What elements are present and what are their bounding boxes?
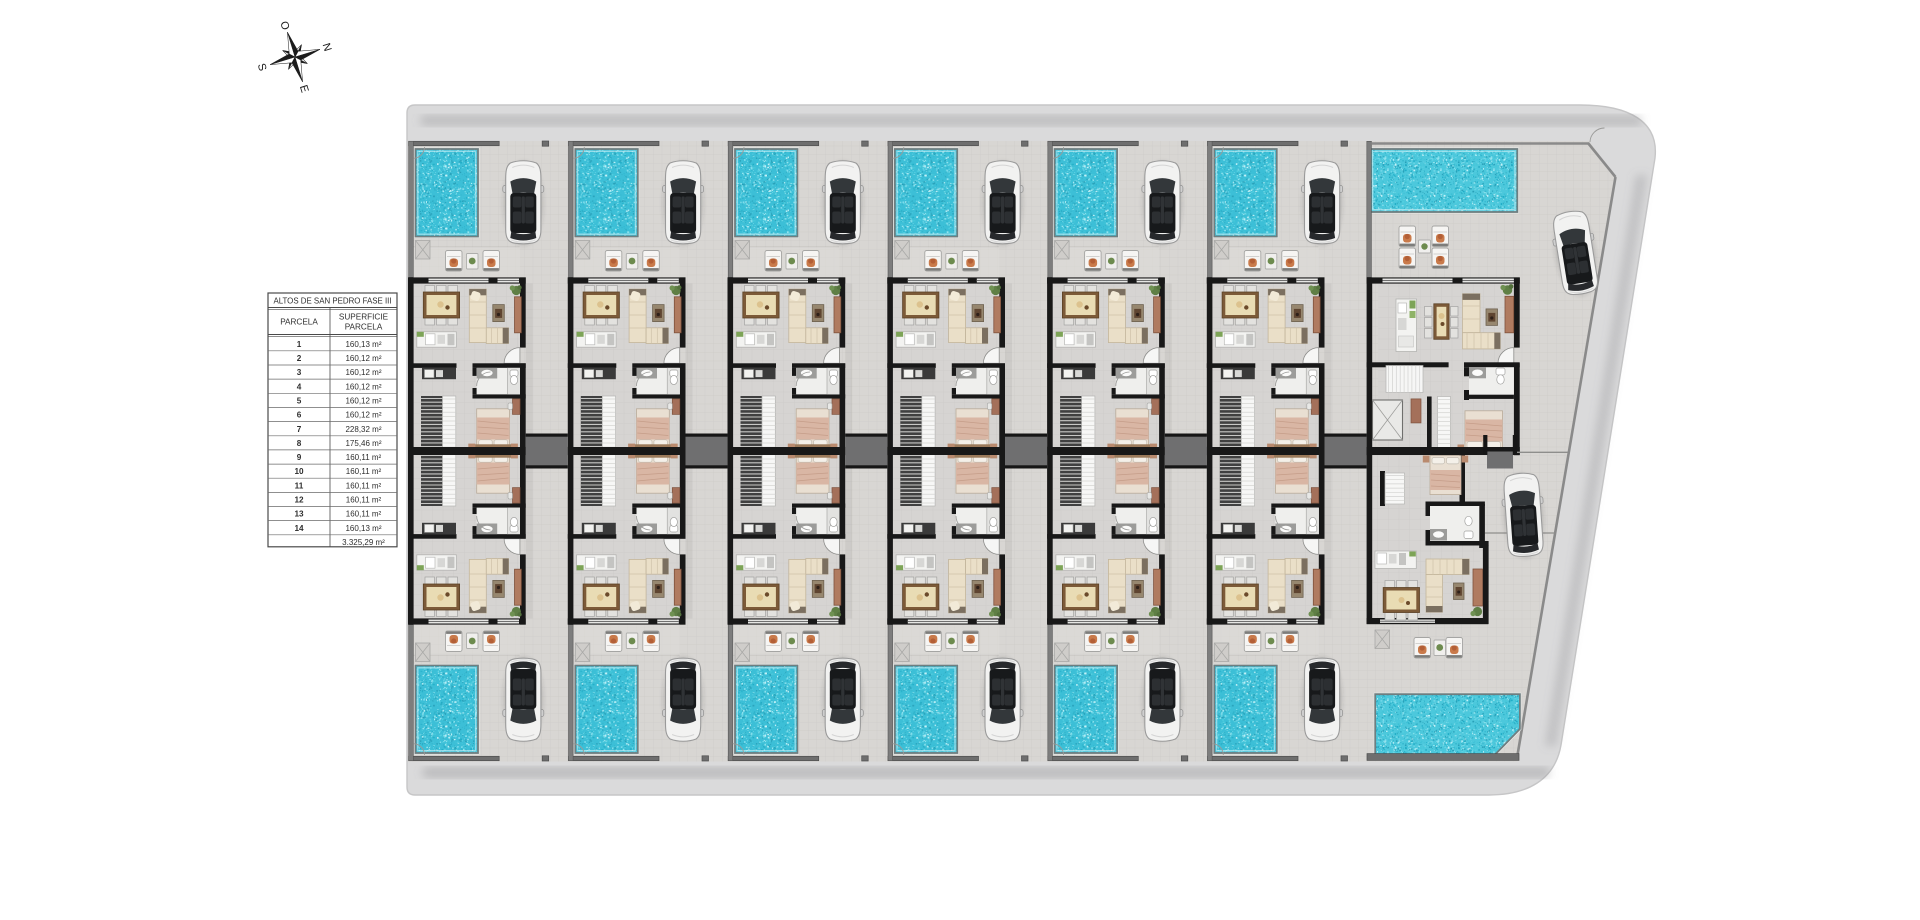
svg-text:160,12 m²: 160,12 m²: [345, 354, 381, 363]
svg-text:3: 3: [297, 368, 302, 377]
svg-text:160,11 m²: 160,11 m²: [346, 510, 382, 519]
svg-text:PARCELA: PARCELA: [345, 323, 383, 332]
svg-text:160,11 m²: 160,11 m²: [346, 453, 382, 462]
svg-text:8: 8: [297, 439, 302, 448]
svg-text:6: 6: [297, 411, 302, 420]
svg-text:12: 12: [294, 496, 304, 505]
svg-text:160,12 m²: 160,12 m²: [345, 397, 381, 406]
svg-text:175,46 m²: 175,46 m²: [345, 439, 381, 448]
svg-text:5: 5: [297, 397, 302, 406]
svg-text:228,32 m²: 228,32 m²: [345, 425, 381, 434]
svg-text:7: 7: [297, 425, 302, 434]
svg-text:3.325,29 m²: 3.325,29 m²: [342, 538, 385, 547]
svg-text:160,11 m²: 160,11 m²: [346, 481, 382, 490]
svg-text:PARCELA: PARCELA: [280, 318, 318, 327]
svg-text:10: 10: [294, 467, 304, 476]
svg-text:4: 4: [297, 382, 302, 391]
svg-text:13: 13: [294, 510, 304, 519]
svg-text:9: 9: [297, 453, 302, 462]
svg-text:160,13 m²: 160,13 m²: [345, 524, 381, 533]
svg-text:ALTOS DE SAN PEDRO FASE III: ALTOS DE SAN PEDRO FASE III: [273, 297, 391, 306]
svg-text:160,12 m²: 160,12 m²: [345, 382, 381, 391]
svg-text:14: 14: [294, 524, 304, 533]
svg-text:SUPERFICIE: SUPERFICIE: [339, 313, 389, 322]
svg-text:160,11 m²: 160,11 m²: [346, 496, 382, 505]
svg-text:2: 2: [297, 354, 302, 363]
svg-text:160,13 m²: 160,13 m²: [345, 340, 381, 349]
svg-text:160,12 m²: 160,12 m²: [345, 368, 381, 377]
svg-text:1: 1: [297, 340, 302, 349]
svg-text:160,11 m²: 160,11 m²: [346, 467, 382, 476]
svg-text:11: 11: [295, 481, 304, 490]
svg-text:160,12 m²: 160,12 m²: [345, 411, 381, 420]
